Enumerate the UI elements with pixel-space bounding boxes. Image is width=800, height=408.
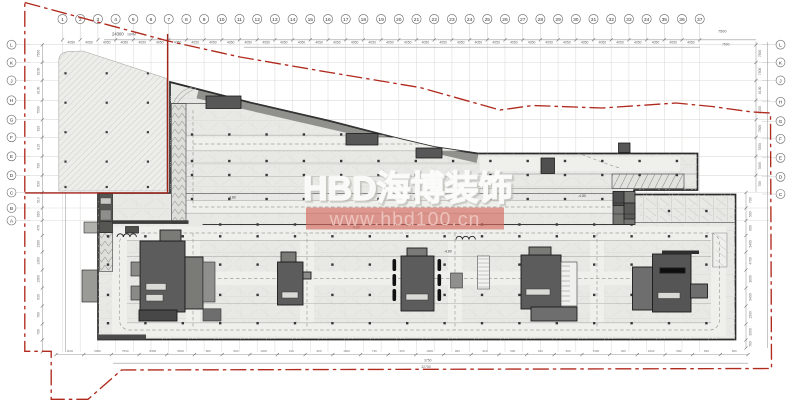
svg-text:26: 26	[502, 17, 508, 23]
svg-text:-4.80: -4.80	[228, 196, 236, 200]
svg-text:4: 4	[114, 17, 117, 23]
svg-text:20: 20	[396, 17, 402, 23]
svg-text:7500: 7500	[36, 50, 40, 58]
svg-text:500: 500	[510, 349, 515, 353]
svg-text:4050: 4050	[492, 41, 500, 45]
svg-text:34: 34	[644, 17, 650, 23]
svg-text:810: 810	[36, 144, 40, 150]
svg-text:1000: 1000	[260, 349, 267, 353]
svg-text:4050: 4050	[599, 41, 607, 45]
svg-text:36: 36	[679, 17, 685, 23]
svg-text:32750: 32750	[421, 365, 431, 369]
svg-text:4050: 4050	[669, 41, 677, 45]
svg-text:7300: 7300	[592, 349, 599, 353]
svg-text:4050: 4050	[85, 41, 93, 45]
svg-text:760: 760	[36, 312, 40, 318]
svg-text:1: 1	[61, 17, 64, 23]
svg-text:730: 730	[372, 349, 377, 353]
svg-text:4050: 4050	[404, 41, 412, 45]
svg-text:15: 15	[308, 17, 314, 23]
svg-text:700: 700	[36, 329, 40, 335]
svg-text:1900: 1900	[648, 349, 655, 353]
svg-text:H: H	[779, 100, 783, 106]
svg-text:1900: 1900	[426, 349, 433, 353]
svg-text:F: F	[779, 137, 782, 143]
svg-text:920: 920	[482, 349, 487, 353]
svg-text:33: 33	[626, 17, 632, 23]
svg-text:500: 500	[749, 211, 753, 217]
svg-text:23: 23	[449, 17, 455, 23]
svg-text:760: 760	[749, 341, 753, 347]
svg-text:9600: 9600	[177, 349, 184, 353]
svg-text:750: 750	[36, 163, 40, 169]
svg-text:8100: 8100	[36, 86, 40, 94]
svg-text:7500: 7500	[758, 125, 762, 133]
svg-text:G: G	[10, 118, 14, 124]
svg-text:4050: 4050	[209, 41, 217, 45]
svg-text:27: 27	[520, 17, 526, 23]
svg-text:32: 32	[608, 17, 614, 23]
svg-text:4050: 4050	[545, 41, 553, 45]
svg-text:22: 22	[431, 17, 437, 23]
svg-text:1500: 1500	[749, 311, 753, 319]
svg-text:10: 10	[219, 17, 225, 23]
svg-text:G: G	[779, 119, 783, 125]
svg-text:8100: 8100	[758, 86, 762, 94]
svg-text:4050: 4050	[103, 41, 111, 45]
svg-text:24: 24	[467, 17, 473, 23]
svg-text:17: 17	[343, 17, 349, 23]
svg-text:5400: 5400	[749, 293, 753, 301]
svg-text:1060: 1060	[36, 240, 40, 248]
svg-text:9000: 9000	[94, 349, 101, 353]
svg-text:4050: 4050	[191, 41, 199, 45]
svg-text:1900: 1900	[343, 349, 350, 353]
svg-text:4050: 4050	[528, 41, 536, 45]
svg-text:4050: 4050	[68, 41, 76, 45]
svg-text:4050: 4050	[262, 41, 270, 45]
svg-text:4050: 4050	[563, 41, 571, 45]
svg-text:470: 470	[36, 225, 40, 231]
svg-text:800: 800	[749, 225, 753, 231]
svg-text:L: L	[10, 43, 13, 49]
svg-text:8350: 8350	[150, 349, 157, 353]
svg-text:37: 37	[697, 17, 703, 23]
svg-text:630: 630	[36, 294, 40, 300]
svg-text:3750: 3750	[424, 358, 432, 362]
svg-text:4050: 4050	[386, 41, 394, 45]
svg-text:16: 16	[325, 17, 331, 23]
svg-text:4050: 4050	[298, 41, 306, 45]
svg-text:4050: 4050	[315, 41, 323, 45]
svg-text:4050: 4050	[156, 41, 164, 45]
svg-text:900: 900	[316, 349, 321, 353]
svg-text:4050: 4050	[227, 41, 235, 45]
svg-text:400: 400	[399, 349, 404, 353]
svg-text:C: C	[10, 190, 14, 196]
svg-text:C: C	[779, 192, 783, 198]
svg-text:630: 630	[36, 181, 40, 187]
svg-text:30: 30	[573, 17, 579, 23]
svg-text:www.hbd100.cn: www.hbd100.cn	[329, 209, 481, 231]
svg-text:800: 800	[206, 349, 211, 353]
svg-text:7500: 7500	[758, 50, 762, 58]
svg-text:600: 600	[566, 349, 571, 353]
svg-text:7500: 7500	[758, 68, 762, 76]
svg-text:7500: 7500	[36, 106, 40, 114]
svg-text:910: 910	[538, 349, 543, 353]
svg-text:7500: 7500	[722, 43, 730, 47]
svg-text:9: 9	[203, 17, 206, 23]
svg-text:11: 11	[237, 17, 242, 23]
svg-text:HBD海博装饰: HBD海博装饰	[303, 170, 513, 208]
svg-text:4050: 4050	[581, 41, 589, 45]
svg-text:4050: 4050	[138, 41, 146, 45]
svg-text:4050: 4050	[652, 41, 660, 45]
svg-text:B: B	[10, 206, 13, 212]
svg-text:4700: 4700	[749, 257, 753, 265]
svg-text:H: H	[10, 98, 14, 104]
svg-text:7500: 7500	[718, 30, 726, 34]
svg-text:900: 900	[233, 349, 238, 353]
svg-text:14: 14	[290, 17, 296, 23]
svg-text:660: 660	[36, 211, 40, 217]
svg-text:E: E	[779, 156, 782, 162]
svg-text:820: 820	[704, 349, 709, 353]
svg-text:29: 29	[555, 17, 561, 23]
svg-text:4050: 4050	[634, 41, 642, 45]
svg-text:-4.80: -4.80	[578, 194, 586, 198]
svg-text:D: D	[10, 173, 14, 179]
svg-text:3000: 3000	[749, 328, 753, 336]
svg-text:560: 560	[732, 349, 737, 353]
svg-text:31: 31	[591, 17, 597, 23]
svg-text:L: L	[779, 43, 782, 49]
svg-text:7800: 7800	[758, 162, 762, 170]
svg-text:19: 19	[378, 17, 384, 23]
svg-text:4050: 4050	[121, 41, 129, 45]
svg-text:910: 910	[289, 349, 294, 353]
svg-text:13: 13	[272, 17, 278, 23]
svg-text:7: 7	[167, 17, 170, 23]
svg-text:28: 28	[538, 17, 544, 23]
svg-text:960: 960	[676, 349, 681, 353]
svg-text:510: 510	[36, 197, 40, 203]
svg-text:18: 18	[361, 17, 367, 23]
svg-text:8: 8	[185, 17, 188, 23]
svg-text:960: 960	[455, 349, 460, 353]
svg-text:24300: 24300	[112, 32, 124, 37]
svg-text:-4.80: -4.80	[444, 250, 452, 254]
svg-text:4050: 4050	[439, 41, 447, 45]
svg-text:4050: 4050	[510, 41, 518, 45]
svg-text:4050: 4050	[351, 41, 359, 45]
svg-text:8100: 8100	[36, 68, 40, 76]
svg-text:4050: 4050	[616, 41, 624, 45]
svg-text:4050: 4050	[333, 41, 341, 45]
svg-text:3800: 3800	[749, 275, 753, 283]
svg-text:1060: 1060	[36, 275, 40, 283]
svg-text:5400: 5400	[749, 240, 753, 248]
svg-text:4050: 4050	[687, 41, 695, 45]
svg-text:4050: 4050	[280, 41, 288, 45]
svg-text:25: 25	[485, 17, 491, 23]
svg-text:E: E	[10, 154, 13, 160]
svg-text:700: 700	[749, 197, 753, 203]
svg-text:D: D	[779, 175, 783, 181]
svg-text:400: 400	[621, 349, 626, 353]
svg-text:4050: 4050	[422, 41, 430, 45]
svg-text:1100: 1100	[67, 349, 74, 353]
svg-text:7800: 7800	[758, 143, 762, 151]
svg-text:4050: 4050	[245, 41, 253, 45]
svg-text:700: 700	[758, 181, 762, 187]
svg-text:21: 21	[414, 17, 420, 23]
svg-text:35: 35	[662, 17, 668, 23]
svg-text:F: F	[10, 135, 13, 141]
svg-text:5: 5	[132, 17, 135, 23]
svg-text:16#M: 16#M	[127, 33, 136, 37]
svg-text:4050: 4050	[457, 41, 465, 45]
svg-text:6: 6	[150, 17, 153, 23]
svg-text:12: 12	[254, 17, 260, 23]
svg-text:1360: 1360	[36, 257, 40, 265]
svg-text:4050: 4050	[475, 41, 483, 45]
svg-text:4050: 4050	[368, 41, 376, 45]
svg-text:810: 810	[36, 126, 40, 132]
svg-text:7500: 7500	[122, 349, 129, 353]
